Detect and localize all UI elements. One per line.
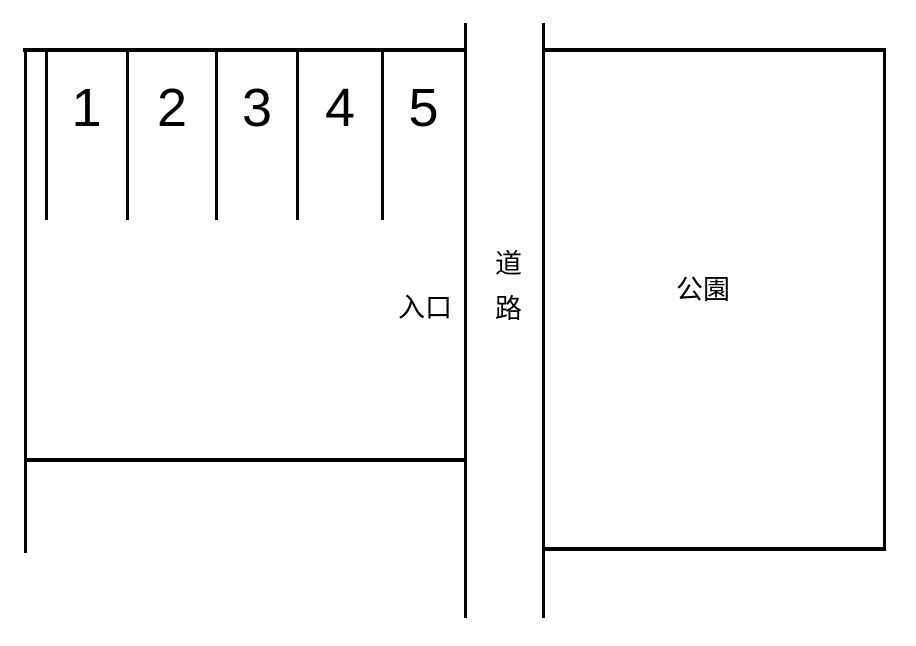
road-left-edge-line (464, 23, 467, 618)
parking-space-number: 4 (297, 80, 383, 136)
parking-space-number: 5 (383, 80, 464, 136)
park-top-boundary-line (544, 48, 886, 52)
parking-space-number: 2 (127, 80, 217, 136)
entrance-label: 入口 (376, 294, 452, 322)
parking-lot-top-boundary-line (23, 48, 467, 52)
parking-space-number: 3 (217, 80, 297, 136)
park-right-boundary-line (883, 48, 886, 551)
road-label: 道路 (491, 249, 521, 339)
park-bottom-boundary-line (544, 547, 886, 551)
parking-space-number: 1 (46, 80, 127, 136)
parking-map-diagram: 1 2 3 4 5 入口 道路 公園 (0, 0, 916, 646)
park-label: 公園 (648, 276, 758, 304)
parking-lot-inner-boundary-line (24, 458, 467, 462)
road-right-edge-line (542, 23, 545, 618)
parking-lot-left-boundary-line (24, 48, 27, 553)
